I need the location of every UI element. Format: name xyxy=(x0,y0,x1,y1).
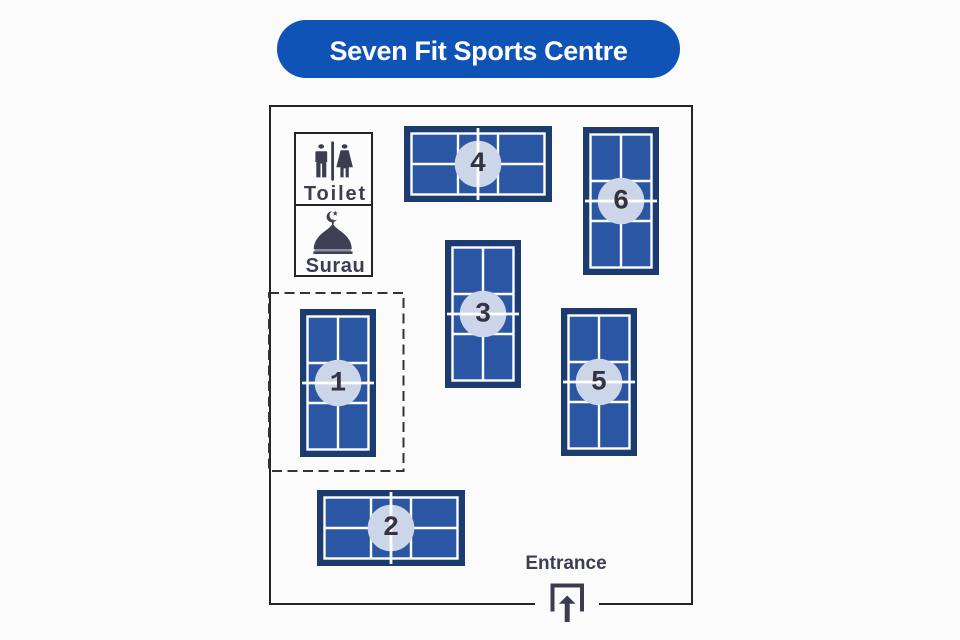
svg-text:5: 5 xyxy=(591,367,608,398)
svg-text:1: 1 xyxy=(330,368,347,399)
svg-text:6: 6 xyxy=(613,186,630,217)
svg-text:4: 4 xyxy=(470,149,487,180)
svg-text:3: 3 xyxy=(475,299,492,330)
svg-text:2: 2 xyxy=(383,513,400,544)
